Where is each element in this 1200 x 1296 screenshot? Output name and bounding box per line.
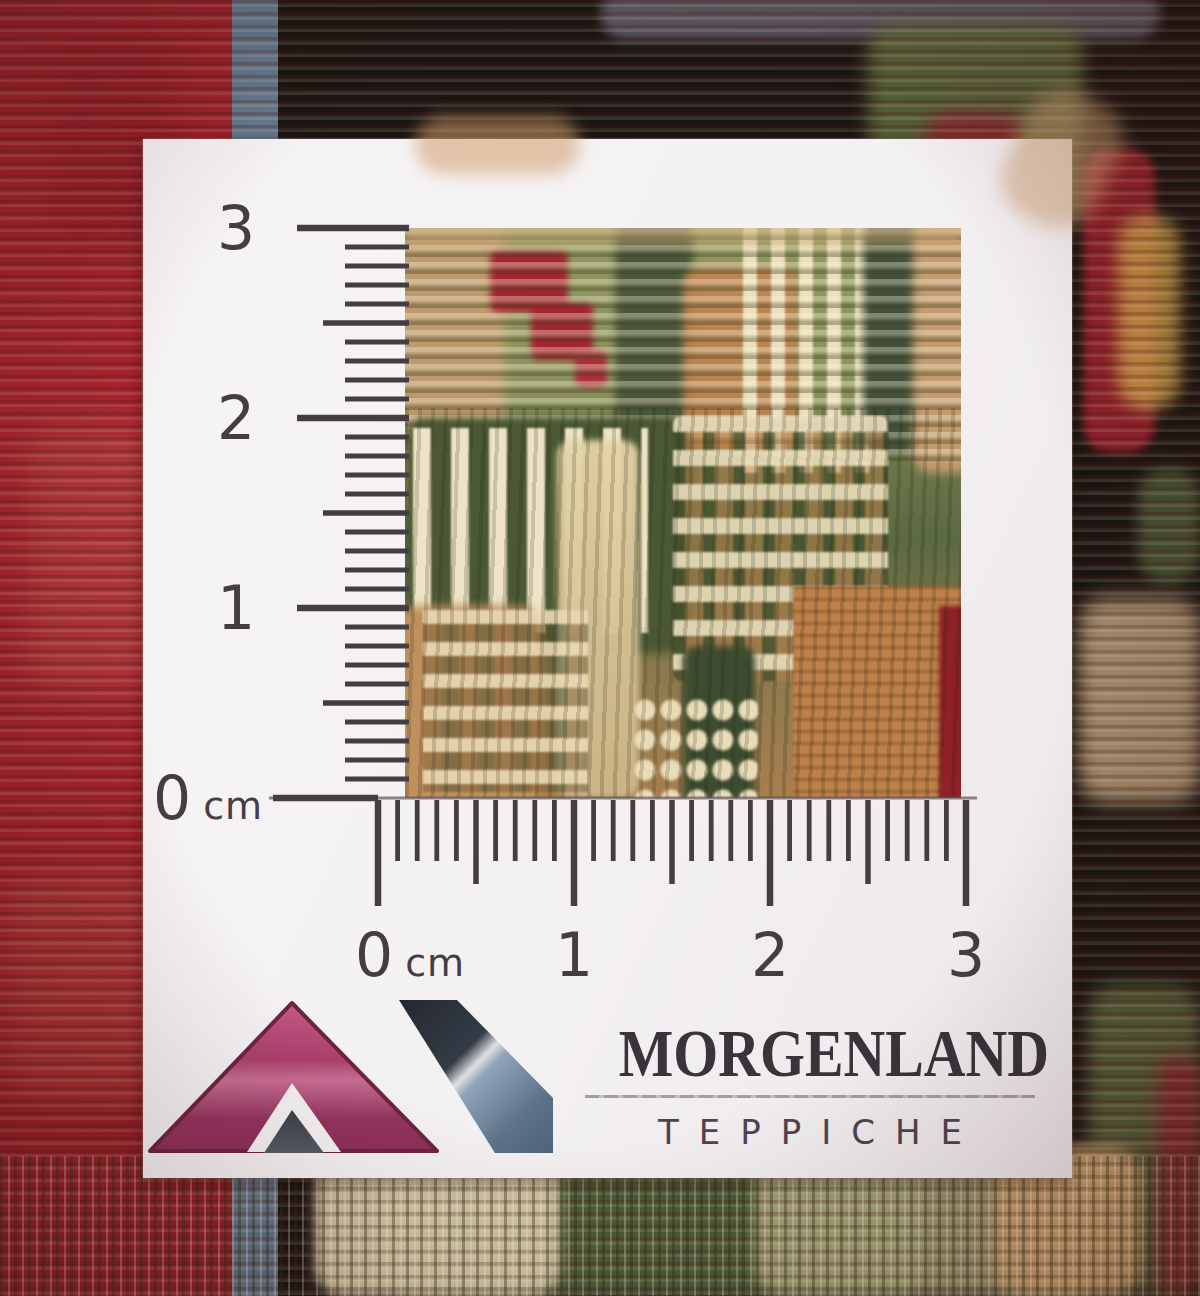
- hruler-unit: cm: [405, 944, 465, 982]
- logo-right-peak: [399, 1000, 553, 1153]
- vruler-label-0cm: 0 cm: [153, 768, 263, 828]
- photo-scene: 3 2 1 0 cm 0 cm 1 2 3: [0, 0, 1200, 1296]
- weave-top-fuzz: [405, 228, 961, 246]
- measure-card: 3 2 1 0 cm 0 cm 1 2 3: [143, 139, 1072, 1178]
- vruler-zero: 0: [153, 768, 191, 828]
- vruler-label-2: 2: [196, 388, 276, 448]
- weave-fiber-streaks: [405, 408, 961, 798]
- vruler-label-3: 3: [196, 198, 276, 258]
- hruler-label-2: 2: [730, 925, 810, 985]
- vruler-label-1: 1: [196, 578, 276, 638]
- hruler-label-3: 3: [926, 925, 1006, 985]
- hruler-label-0cm: 0 cm: [355, 925, 465, 985]
- brand-block: MORGENLAND TEPPICHE: [585, 1017, 1035, 1149]
- morgenland-logo: [143, 989, 563, 1161]
- brand-subtitle: TEPPICHE: [585, 1115, 1035, 1149]
- hruler-label-1: 1: [534, 925, 614, 985]
- cutout-window: [405, 228, 961, 798]
- hruler-zero: 0: [355, 925, 393, 985]
- brand-name: MORGENLAND: [619, 1017, 1002, 1089]
- brand-underline: [585, 1095, 1035, 1098]
- vruler-unit: cm: [203, 787, 263, 825]
